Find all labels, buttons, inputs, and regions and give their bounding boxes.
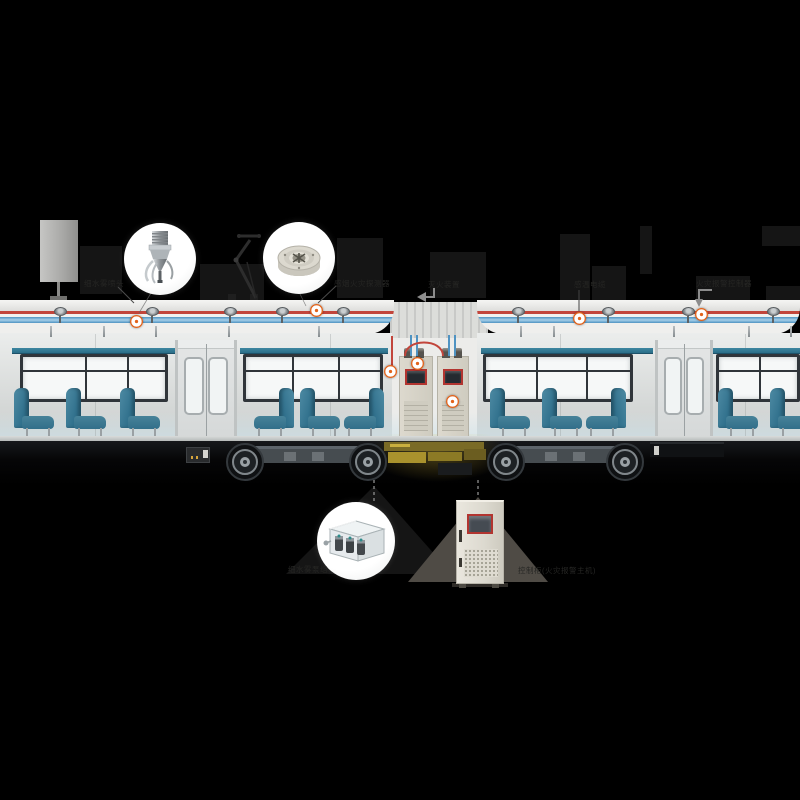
label-suppression-cabinet: 灭火装置: [428, 279, 460, 290]
leader-detector-circle: [300, 294, 306, 306]
smoke-detector-callout: [263, 222, 335, 294]
label-heat-cable: 感温电缆: [574, 279, 606, 290]
pump-unit-callout: [317, 502, 395, 580]
annotation-layer: [0, 0, 800, 800]
train-fire-system-diagram: 细水雾喷头 感烟火灾探测器 灭火装置 感温电缆 火灾报警控制器 细水雾泵组 控制…: [0, 0, 800, 800]
leader-arrow-controller: [695, 290, 712, 307]
label-control-cabinet: 控制柜(火灾报警主机): [518, 565, 596, 576]
label-alarm-controller: 火灾报警控制器: [696, 278, 752, 289]
leader-nozzle-circle: [139, 293, 151, 313]
nozzle-callout: [124, 223, 196, 295]
smoke-detector-icon: [263, 222, 335, 294]
label-pump-unit: 细水雾泵组: [288, 564, 328, 575]
mist-nozzle-icon: [124, 223, 196, 295]
pump-unit-icon: [317, 502, 395, 580]
leader-arrow-cabinet: [417, 288, 434, 302]
label-smoke-detector: 感烟火灾探测器: [334, 278, 390, 289]
label-mist-nozzle: 细水雾喷头: [84, 278, 124, 289]
